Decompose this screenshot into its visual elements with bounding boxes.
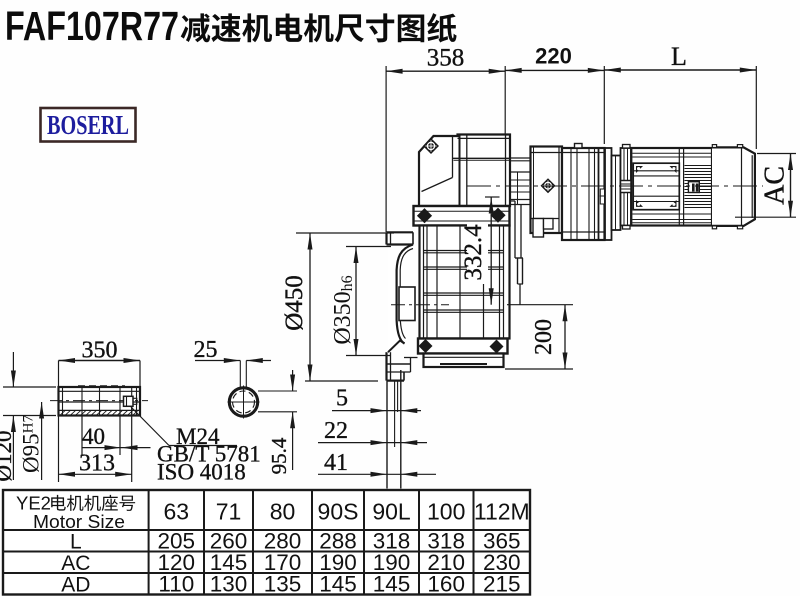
svg-text:Ø120: Ø120 [0, 430, 16, 481]
svg-text:41: 41 [324, 450, 348, 476]
svg-text:220: 220 [535, 44, 572, 69]
svg-text:110: 110 [158, 572, 194, 596]
svg-text:350: 350 [82, 338, 118, 364]
svg-text:215: 215 [483, 572, 521, 596]
svg-text:FAF107R77: FAF107R77 [5, 3, 179, 49]
svg-text:5: 5 [336, 386, 348, 412]
svg-text:313: 313 [79, 451, 115, 477]
svg-text:130: 130 [210, 572, 248, 596]
svg-text:Motor Size: Motor Size [33, 511, 125, 532]
svg-text:AD: AD [61, 574, 90, 596]
svg-text:AC: AC [760, 166, 791, 205]
svg-text:90L: 90L [372, 499, 411, 525]
svg-text:63: 63 [164, 499, 190, 525]
svg-text:135: 135 [264, 572, 302, 596]
svg-text:L: L [671, 42, 687, 71]
svg-text:332.4: 332.4 [460, 224, 487, 281]
svg-text:AC: AC [61, 552, 90, 575]
svg-text:100: 100 [427, 499, 465, 525]
svg-text:358: 358 [427, 45, 465, 72]
svg-text:145: 145 [319, 572, 357, 596]
svg-text:95.4: 95.4 [267, 437, 291, 474]
svg-text:ISO 4018: ISO 4018 [157, 460, 246, 485]
svg-text:71: 71 [216, 499, 242, 525]
svg-text:40: 40 [82, 424, 105, 449]
svg-text:L: L [70, 531, 82, 554]
svg-text:160: 160 [427, 572, 465, 596]
svg-text:145: 145 [373, 572, 411, 596]
svg-text:80: 80 [270, 499, 296, 525]
svg-text:22: 22 [324, 418, 348, 444]
svg-text:200: 200 [531, 319, 557, 355]
svg-text:BOSERL: BOSERL [47, 110, 129, 140]
svg-text:25: 25 [194, 337, 218, 363]
svg-text:90S: 90S [318, 499, 359, 525]
svg-text:Ø450: Ø450 [281, 275, 308, 331]
svg-text:112M: 112M [474, 499, 530, 525]
